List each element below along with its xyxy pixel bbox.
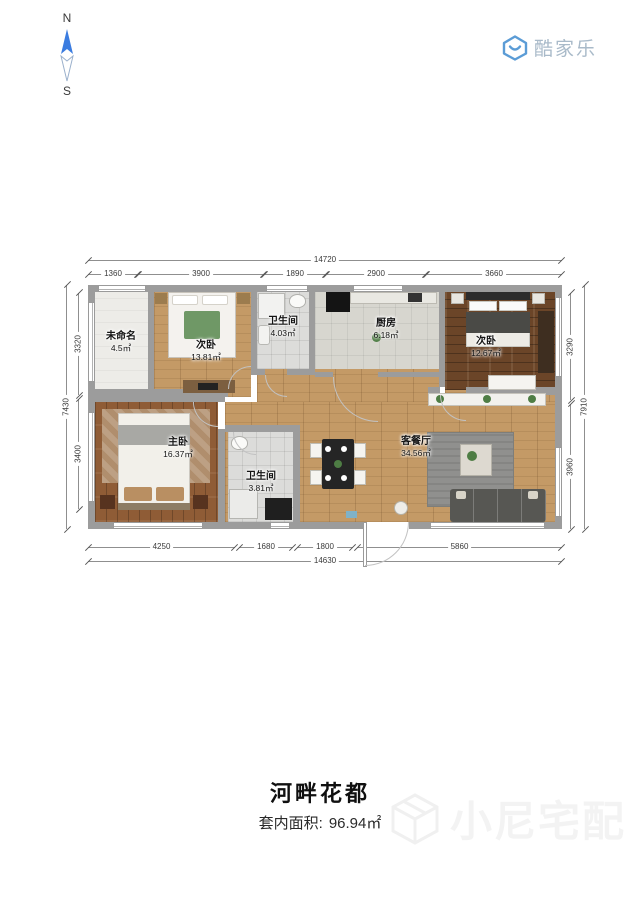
window: [88, 412, 95, 502]
compass-needle-icon: [58, 27, 76, 83]
dim-label: 2900: [364, 270, 388, 279]
dim-label: 1360: [101, 270, 125, 279]
dim-bottom-seg: 1800: [297, 547, 353, 548]
dim-left-seg: 3400: [78, 399, 79, 509]
dim-label: 4250: [150, 543, 174, 552]
room-name: 厨房: [373, 317, 398, 330]
room-area: 13.81㎡: [191, 352, 221, 363]
window: [353, 285, 403, 292]
room-label-kitchen: 厨房 6.18㎡: [373, 317, 398, 341]
compass-south-label: S: [50, 85, 84, 98]
compass-north-label: N: [50, 12, 84, 25]
dim-right-seg: 3290: [570, 293, 571, 400]
dim-label: 1890: [283, 270, 307, 279]
dim-top-seg: 3660: [426, 274, 562, 275]
outer-wall: [88, 285, 562, 529]
room-area: 3.81㎡: [246, 483, 276, 494]
inner-area-label: 套内面积:: [259, 815, 323, 832]
dim-label: 3290: [567, 335, 576, 359]
dim-top-seg: 1890: [264, 274, 326, 275]
dim-label: 14630: [311, 557, 339, 566]
dim-bottom-total: 14630: [88, 561, 562, 562]
window: [555, 297, 562, 377]
room-name: 客餐厅: [401, 435, 431, 448]
window: [113, 522, 203, 529]
room-name: 卫生间: [246, 470, 276, 483]
dim-right-total: 7910: [584, 285, 585, 529]
window: [270, 522, 290, 529]
dim-top-seg: 1360: [88, 274, 138, 275]
room-label-bedroom-right: 次卧 12.67㎡: [471, 335, 501, 359]
door-arc-entrance: [365, 522, 409, 566]
dim-label: 7910: [581, 395, 590, 419]
room-name: 卫生间: [268, 315, 298, 328]
room-name: 次卧: [191, 339, 221, 352]
dim-left-total: 7430: [66, 285, 67, 529]
window: [430, 522, 545, 529]
room-label-living: 客餐厅 34.56㎡: [401, 435, 431, 459]
dim-label: 3960: [567, 455, 576, 479]
room-area: 6.18㎡: [373, 330, 398, 341]
room-name: 主卧: [163, 436, 193, 449]
dim-label: 1800: [313, 543, 337, 552]
room-label-bedroom-top: 次卧 13.81㎡: [191, 339, 221, 363]
window: [98, 285, 146, 292]
dim-top-seg: 3900: [138, 274, 264, 275]
room-label-master: 主卧 16.37㎡: [163, 436, 193, 460]
watermark: 小尼宅配: [388, 788, 626, 849]
watermark-text: 小尼宅配: [450, 788, 626, 849]
room-area: 16.37㎡: [163, 449, 193, 460]
room-label-bath-top: 卫生间 4.03㎡: [268, 315, 298, 339]
kujiale-shield-icon: [502, 35, 528, 61]
floorplan-page: N S 酷家乐 14720 1360 3900 1890 2900 3660 4…: [0, 0, 640, 905]
dim-label: 3900: [189, 270, 213, 279]
room-name: 未命名: [106, 330, 136, 343]
dim-bottom-seg: 1680: [239, 547, 293, 548]
room-label-bath-bottom: 卫生间 3.81㎡: [246, 470, 276, 494]
brand-name: 酷家乐: [534, 34, 597, 61]
dim-label: 3660: [482, 270, 506, 279]
room-label-unnamed: 未命名 4.5㎡: [106, 330, 136, 354]
dim-top-seg: 2900: [326, 274, 426, 275]
room-area: 4.5㎡: [106, 343, 136, 354]
dim-left-seg: 3320: [78, 293, 79, 395]
dim-label: 3320: [75, 332, 84, 356]
room-area: 12.67㎡: [471, 348, 501, 359]
window: [88, 302, 95, 382]
brand-logo: 酷家乐: [502, 34, 597, 61]
dim-label: 7430: [63, 395, 72, 419]
window: [266, 285, 308, 292]
room-area: 4.03㎡: [268, 328, 298, 339]
plan-body: 未命名 4.5㎡ 次卧 13.81㎡ 卫生间 4.03㎡ 厨房 6.18㎡ 次卧…: [88, 285, 562, 529]
room-name: 次卧: [471, 335, 501, 348]
room-area: 34.56㎡: [401, 448, 431, 459]
dim-label: 3400: [75, 442, 84, 466]
dim-right-seg: 3960: [570, 404, 571, 529]
dim-label: 5860: [448, 543, 472, 552]
window: [555, 447, 562, 517]
floor-plan: 14720 1360 3900 1890 2900 3660 4250 1680…: [65, 252, 595, 582]
dim-label: 14720: [311, 256, 339, 265]
dim-bottom-seg: 4250: [88, 547, 235, 548]
dim-top-total: 14720: [88, 260, 562, 261]
watermark-cube-icon: [388, 792, 442, 846]
dim-label: 1680: [254, 543, 278, 552]
compass: N S: [50, 12, 84, 98]
inner-area-value: 96.94㎡: [329, 815, 382, 832]
